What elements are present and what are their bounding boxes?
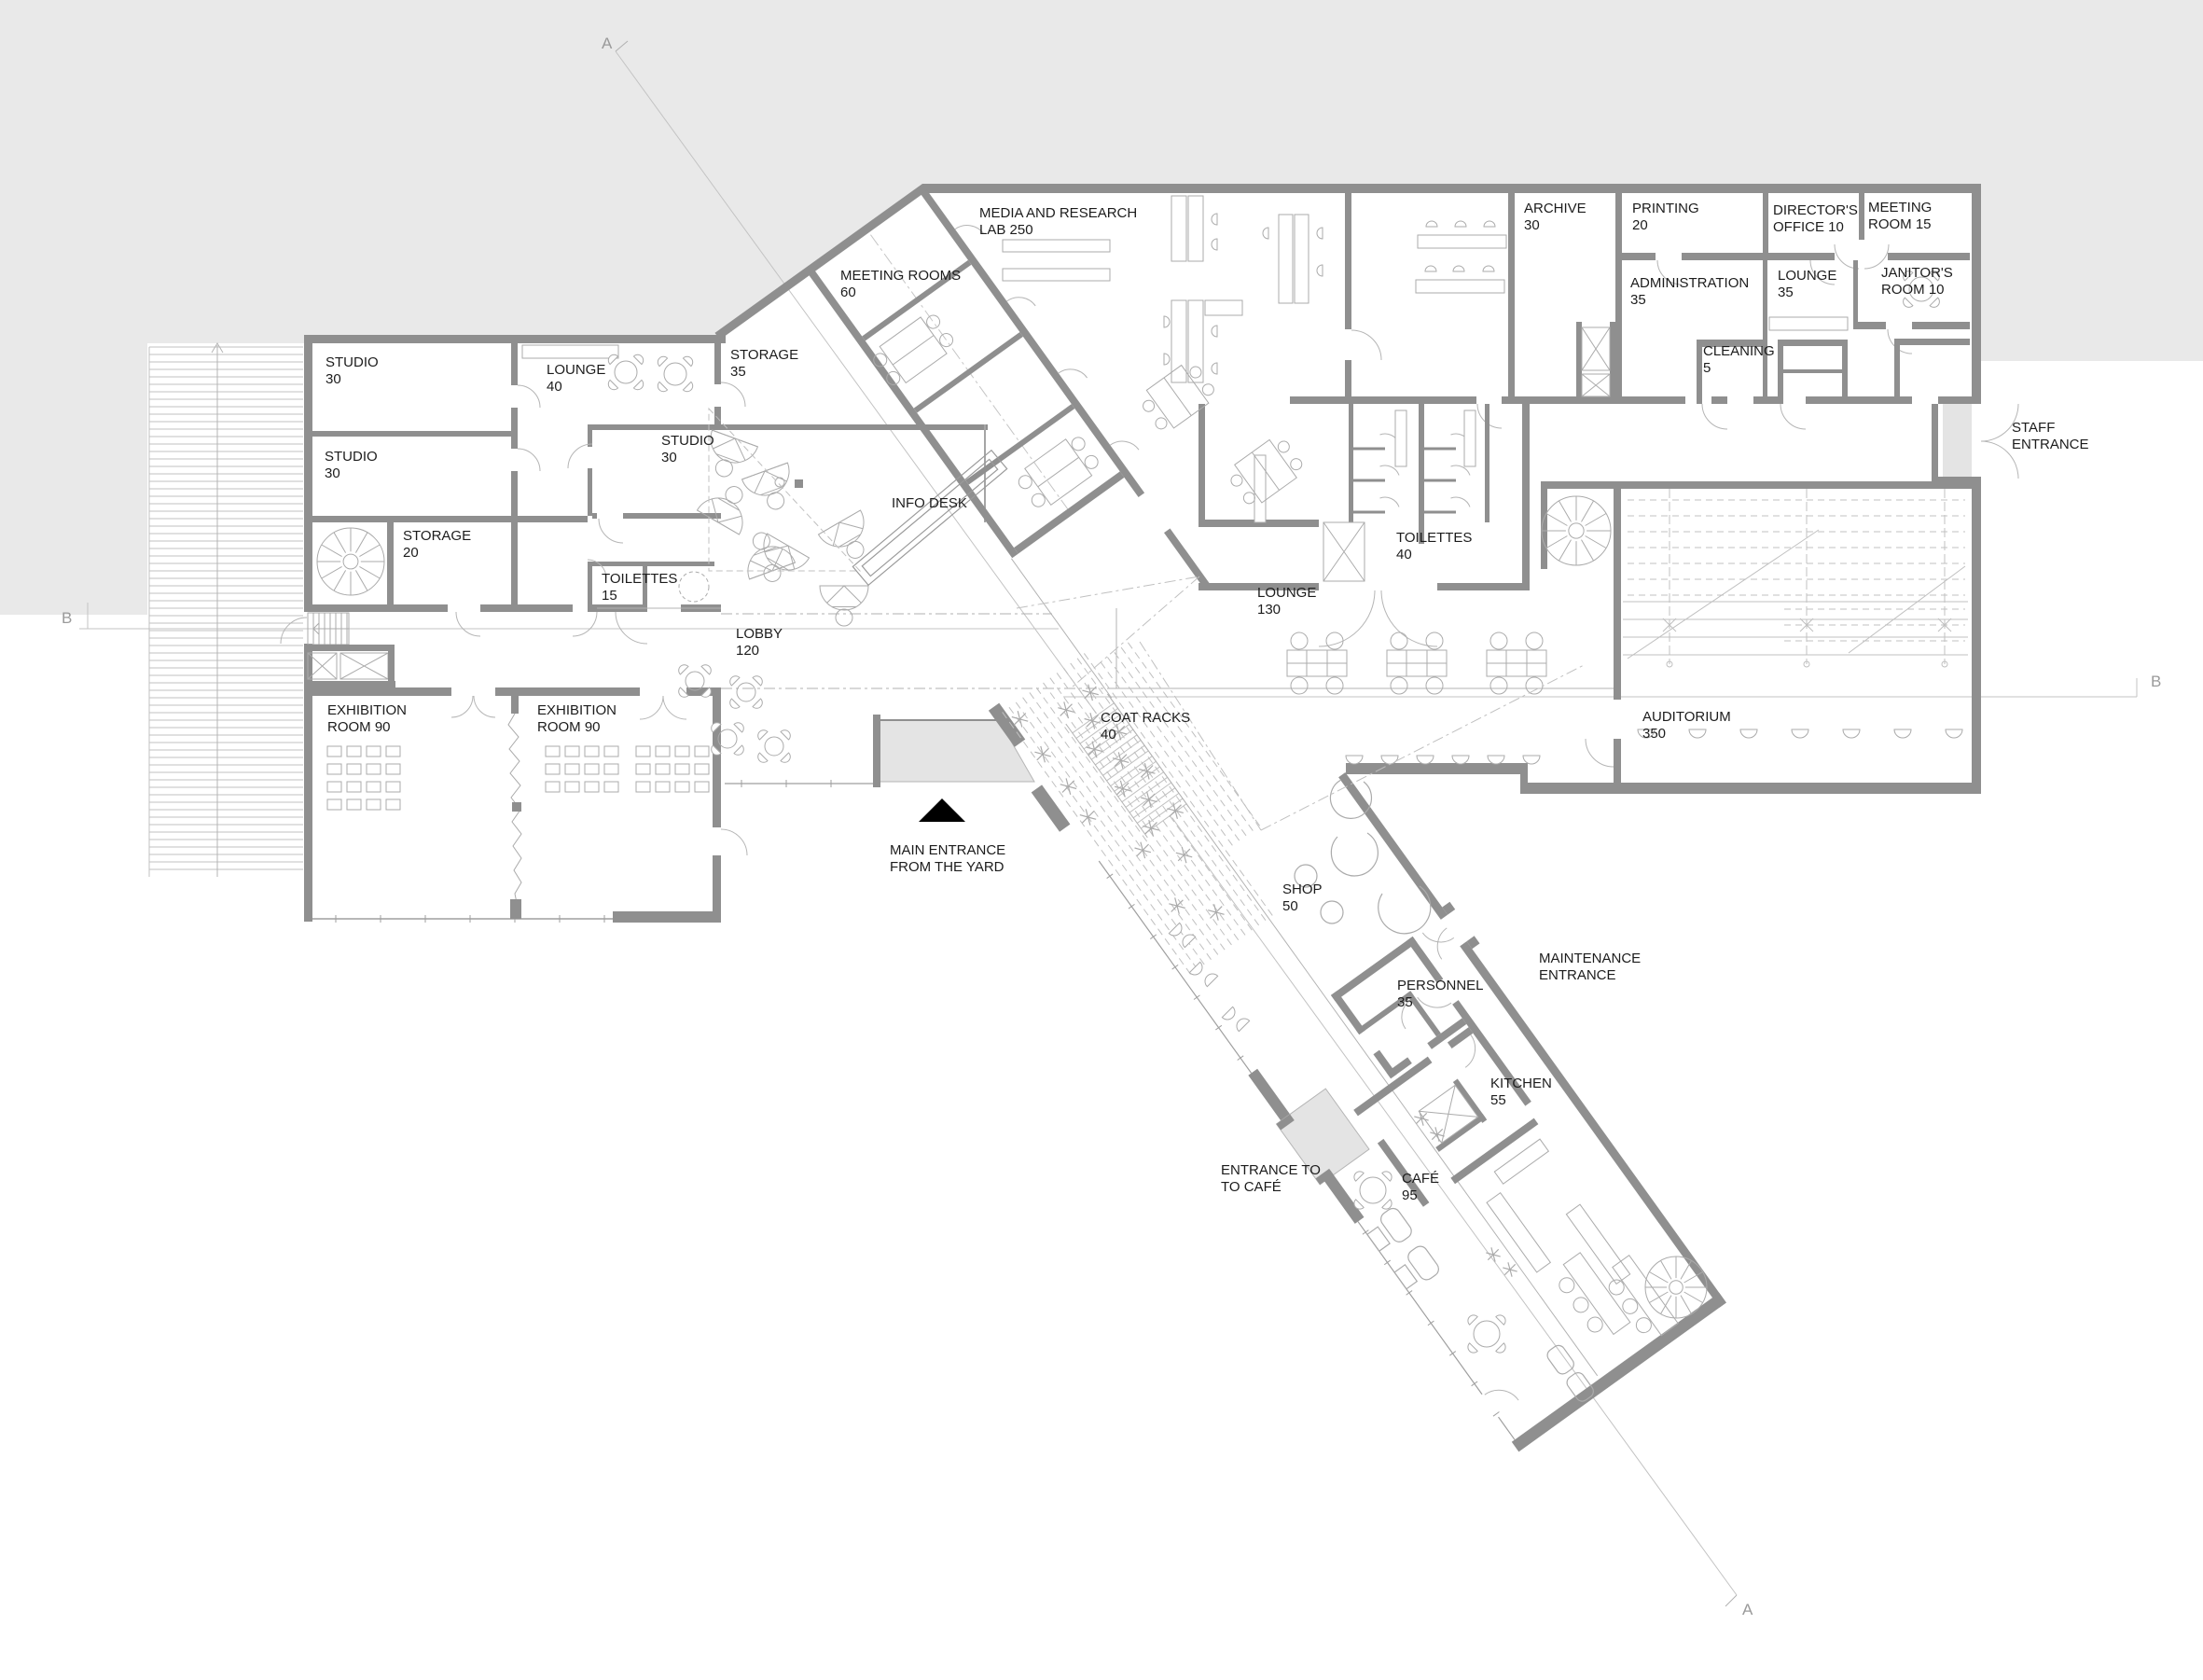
svg-text:LOUNGE: LOUNGE (1778, 268, 1836, 284)
svg-text:ROOM 10: ROOM 10 (1881, 282, 1945, 298)
svg-text:30: 30 (326, 371, 341, 387)
svg-text:35: 35 (1630, 292, 1646, 308)
svg-text:STORAGE: STORAGE (730, 347, 798, 363)
svg-text:35: 35 (730, 364, 746, 380)
svg-text:PRINTING: PRINTING (1632, 201, 1699, 216)
svg-text:350: 350 (1642, 726, 1666, 742)
svg-text:50: 50 (1282, 898, 1298, 914)
svg-text:TOILETTES: TOILETTES (602, 571, 677, 587)
svg-text:30: 30 (661, 450, 677, 465)
svg-text:40: 40 (1101, 727, 1116, 743)
svg-text:INFO DESK: INFO DESK (892, 495, 967, 511)
svg-text:40: 40 (547, 379, 562, 395)
svg-text:SHOP: SHOP (1282, 882, 1323, 897)
svg-text:ADMINISTRATION: ADMINISTRATION (1630, 275, 1749, 291)
svg-text:30: 30 (1524, 217, 1540, 233)
svg-text:EXHIBITION: EXHIBITION (327, 702, 407, 718)
svg-text:20: 20 (403, 545, 419, 561)
svg-text:LOUNGE: LOUNGE (1257, 585, 1316, 601)
svg-text:COAT RACKS: COAT RACKS (1101, 710, 1190, 726)
svg-text:ENTRANCE: ENTRANCE (2012, 437, 2089, 452)
svg-text:DIRECTOR'S: DIRECTOR'S (1773, 202, 1858, 218)
svg-text:LAB 250: LAB 250 (979, 222, 1033, 238)
svg-text:PERSONNEL: PERSONNEL (1397, 978, 1484, 993)
svg-text:KITCHEN: KITCHEN (1490, 1076, 1552, 1091)
svg-text:95: 95 (1402, 1187, 1418, 1203)
svg-text:MAINTENANCE: MAINTENANCE (1539, 951, 1641, 966)
svg-text:STAFF: STAFF (2012, 420, 2055, 436)
svg-text:MAIN ENTRANCE: MAIN ENTRANCE (890, 842, 1005, 858)
svg-text:TO CAFÉ: TO CAFÉ (1221, 1179, 1282, 1195)
svg-text:5: 5 (1703, 360, 1711, 376)
svg-text:15: 15 (602, 588, 617, 604)
svg-text:130: 130 (1257, 602, 1281, 618)
svg-text:EXHIBITION: EXHIBITION (537, 702, 617, 718)
svg-text:AUDITORIUM: AUDITORIUM (1642, 709, 1731, 725)
svg-text:60: 60 (840, 285, 856, 300)
svg-text:CAFÉ: CAFÉ (1402, 1171, 1439, 1187)
svg-text:A: A (1742, 1601, 1753, 1618)
svg-text:ARCHIVE: ARCHIVE (1524, 201, 1586, 216)
svg-text:ROOM 15: ROOM 15 (1868, 216, 1932, 232)
svg-text:TOILETTES: TOILETTES (1396, 530, 1472, 546)
svg-text:CLEANING: CLEANING (1703, 343, 1775, 359)
svg-text:FROM THE YARD: FROM THE YARD (890, 859, 1005, 875)
svg-text:MEETING: MEETING (1868, 200, 1932, 215)
svg-text:MEETING ROOMS: MEETING ROOMS (840, 268, 961, 284)
svg-text:LOBBY: LOBBY (736, 626, 783, 642)
svg-text:ROOM 90: ROOM 90 (537, 719, 601, 735)
svg-text:OFFICE 10: OFFICE 10 (1773, 219, 1844, 235)
svg-text:55: 55 (1490, 1092, 1506, 1108)
svg-text:STORAGE: STORAGE (403, 528, 471, 544)
svg-text:STUDIO: STUDIO (326, 354, 379, 370)
svg-text:ROOM 90: ROOM 90 (327, 719, 391, 735)
svg-text:35: 35 (1778, 285, 1794, 300)
svg-text:20: 20 (1632, 217, 1648, 233)
svg-text:STUDIO: STUDIO (661, 433, 714, 449)
svg-text:JANITOR'S: JANITOR'S (1881, 265, 1953, 281)
svg-text:ENTRANCE TO: ENTRANCE TO (1221, 1162, 1321, 1178)
svg-text:120: 120 (736, 643, 759, 659)
svg-text:A: A (602, 35, 613, 52)
svg-text:30: 30 (325, 465, 340, 481)
svg-text:40: 40 (1396, 547, 1412, 562)
svg-text:35: 35 (1397, 994, 1413, 1010)
svg-text:MEDIA AND RESEARCH: MEDIA AND RESEARCH (979, 205, 1137, 221)
svg-text:B: B (62, 609, 72, 627)
svg-text:STUDIO: STUDIO (325, 449, 378, 465)
svg-text:LOUNGE: LOUNGE (547, 362, 605, 378)
svg-text:B: B (2151, 673, 2161, 690)
svg-text:ENTRANCE: ENTRANCE (1539, 967, 1616, 983)
